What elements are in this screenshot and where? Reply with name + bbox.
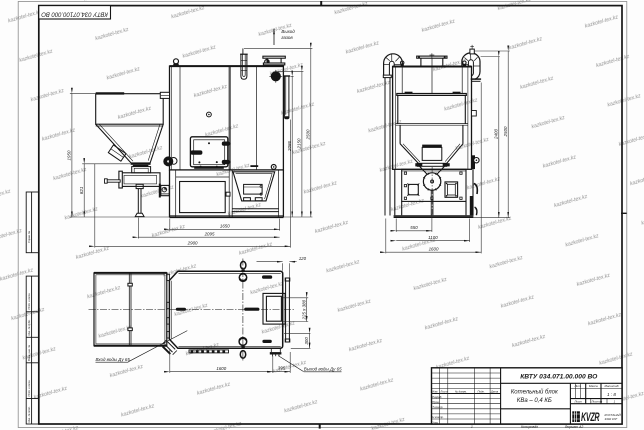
- svg-text:2086: 2086: [287, 141, 292, 152]
- svg-text:300: 300: [304, 337, 309, 345]
- svg-text:Котельный блок: Котельный блок: [511, 389, 559, 396]
- svg-text:Лист: Лист: [439, 389, 448, 393]
- svg-text:Утв.: Утв.: [432, 420, 438, 424]
- svg-text:2400: 2400: [494, 129, 499, 140]
- svg-text:2150: 2150: [297, 138, 302, 149]
- svg-text:Листов: Листов: [590, 400, 602, 404]
- svg-text:Изм.: Изм.: [432, 389, 438, 393]
- svg-text:Пров.: Пров.: [432, 400, 439, 404]
- svg-text:КВТУ 034.071.00.000 ВО: КВТУ 034.071.00.000 ВО: [520, 373, 598, 380]
- svg-text:Выход воды Ду 65: Выход воды Ду 65: [304, 366, 342, 371]
- svg-text:Лит.: Лит.: [573, 384, 581, 388]
- svg-text:газов: газов: [281, 35, 293, 40]
- svg-text:3402 КЗГ: 3402 КЗГ: [605, 417, 618, 421]
- svg-text:КОСТАНАЙ: КОСТАНАЙ: [605, 413, 622, 417]
- svg-text:Масса: Масса: [589, 384, 598, 388]
- svg-text:Взам. инв. №: Взам. инв. №: [27, 345, 31, 361]
- svg-text:Т.контр.: Т.контр.: [432, 405, 443, 409]
- svg-text:Н.контр.: Н.контр.: [432, 415, 444, 419]
- svg-text:225 х 380: 225 х 380: [301, 299, 306, 320]
- svg-text:Инв. № дубл.: Инв. № дубл.: [27, 319, 31, 335]
- svg-text:1100: 1100: [428, 235, 438, 240]
- svg-text:Вход воды Ду 65: Вход воды Ду 65: [96, 357, 131, 362]
- svg-text:KVZR: KVZR: [581, 411, 600, 424]
- svg-text:1: 1: [471, 425, 473, 429]
- svg-text:821: 821: [79, 186, 84, 194]
- svg-text:395: 395: [278, 365, 286, 370]
- svg-text:Дата: Дата: [490, 389, 499, 393]
- svg-text:2500: 2500: [306, 129, 311, 140]
- svg-text:Инв. № подл.: Инв. № подл.: [27, 406, 31, 422]
- svg-text:2500: 2500: [503, 126, 508, 137]
- svg-text:Разраб.: Разраб.: [432, 395, 442, 399]
- svg-text:1 : 8: 1 : 8: [607, 392, 616, 397]
- svg-text:1650: 1650: [220, 224, 230, 229]
- svg-text:Справ. №: Справ. №: [27, 231, 31, 243]
- svg-text:Подп. и дата: Подп. и дата: [27, 380, 31, 397]
- svg-text:Подп.: Подп.: [478, 389, 485, 393]
- svg-text:КВа – 0,4 КБ: КВа – 0,4 КБ: [517, 398, 552, 404]
- svg-text:550: 550: [410, 225, 418, 230]
- svg-text:Лист: Лист: [573, 400, 582, 404]
- svg-text:Копировал: Копировал: [521, 425, 538, 429]
- svg-text:Подп. и дата: Подп. и дата: [27, 293, 31, 310]
- svg-text:КВТУ 034.07100.000 ВО: КВТУ 034.07100.000 ВО: [41, 10, 108, 16]
- svg-text:Формат А2: Формат А2: [565, 425, 584, 429]
- svg-text:1600: 1600: [216, 366, 226, 371]
- svg-text:Масштаб: Масштаб: [604, 384, 618, 388]
- svg-text:Выход: Выход: [281, 29, 295, 34]
- svg-text:1600: 1600: [429, 246, 439, 251]
- svg-text:2900: 2900: [187, 241, 198, 246]
- svg-text:2095: 2095: [204, 232, 215, 237]
- svg-text:120: 120: [299, 256, 307, 261]
- svg-text:№ докум.: № докум.: [455, 389, 467, 393]
- svg-text:1950: 1950: [67, 150, 72, 160]
